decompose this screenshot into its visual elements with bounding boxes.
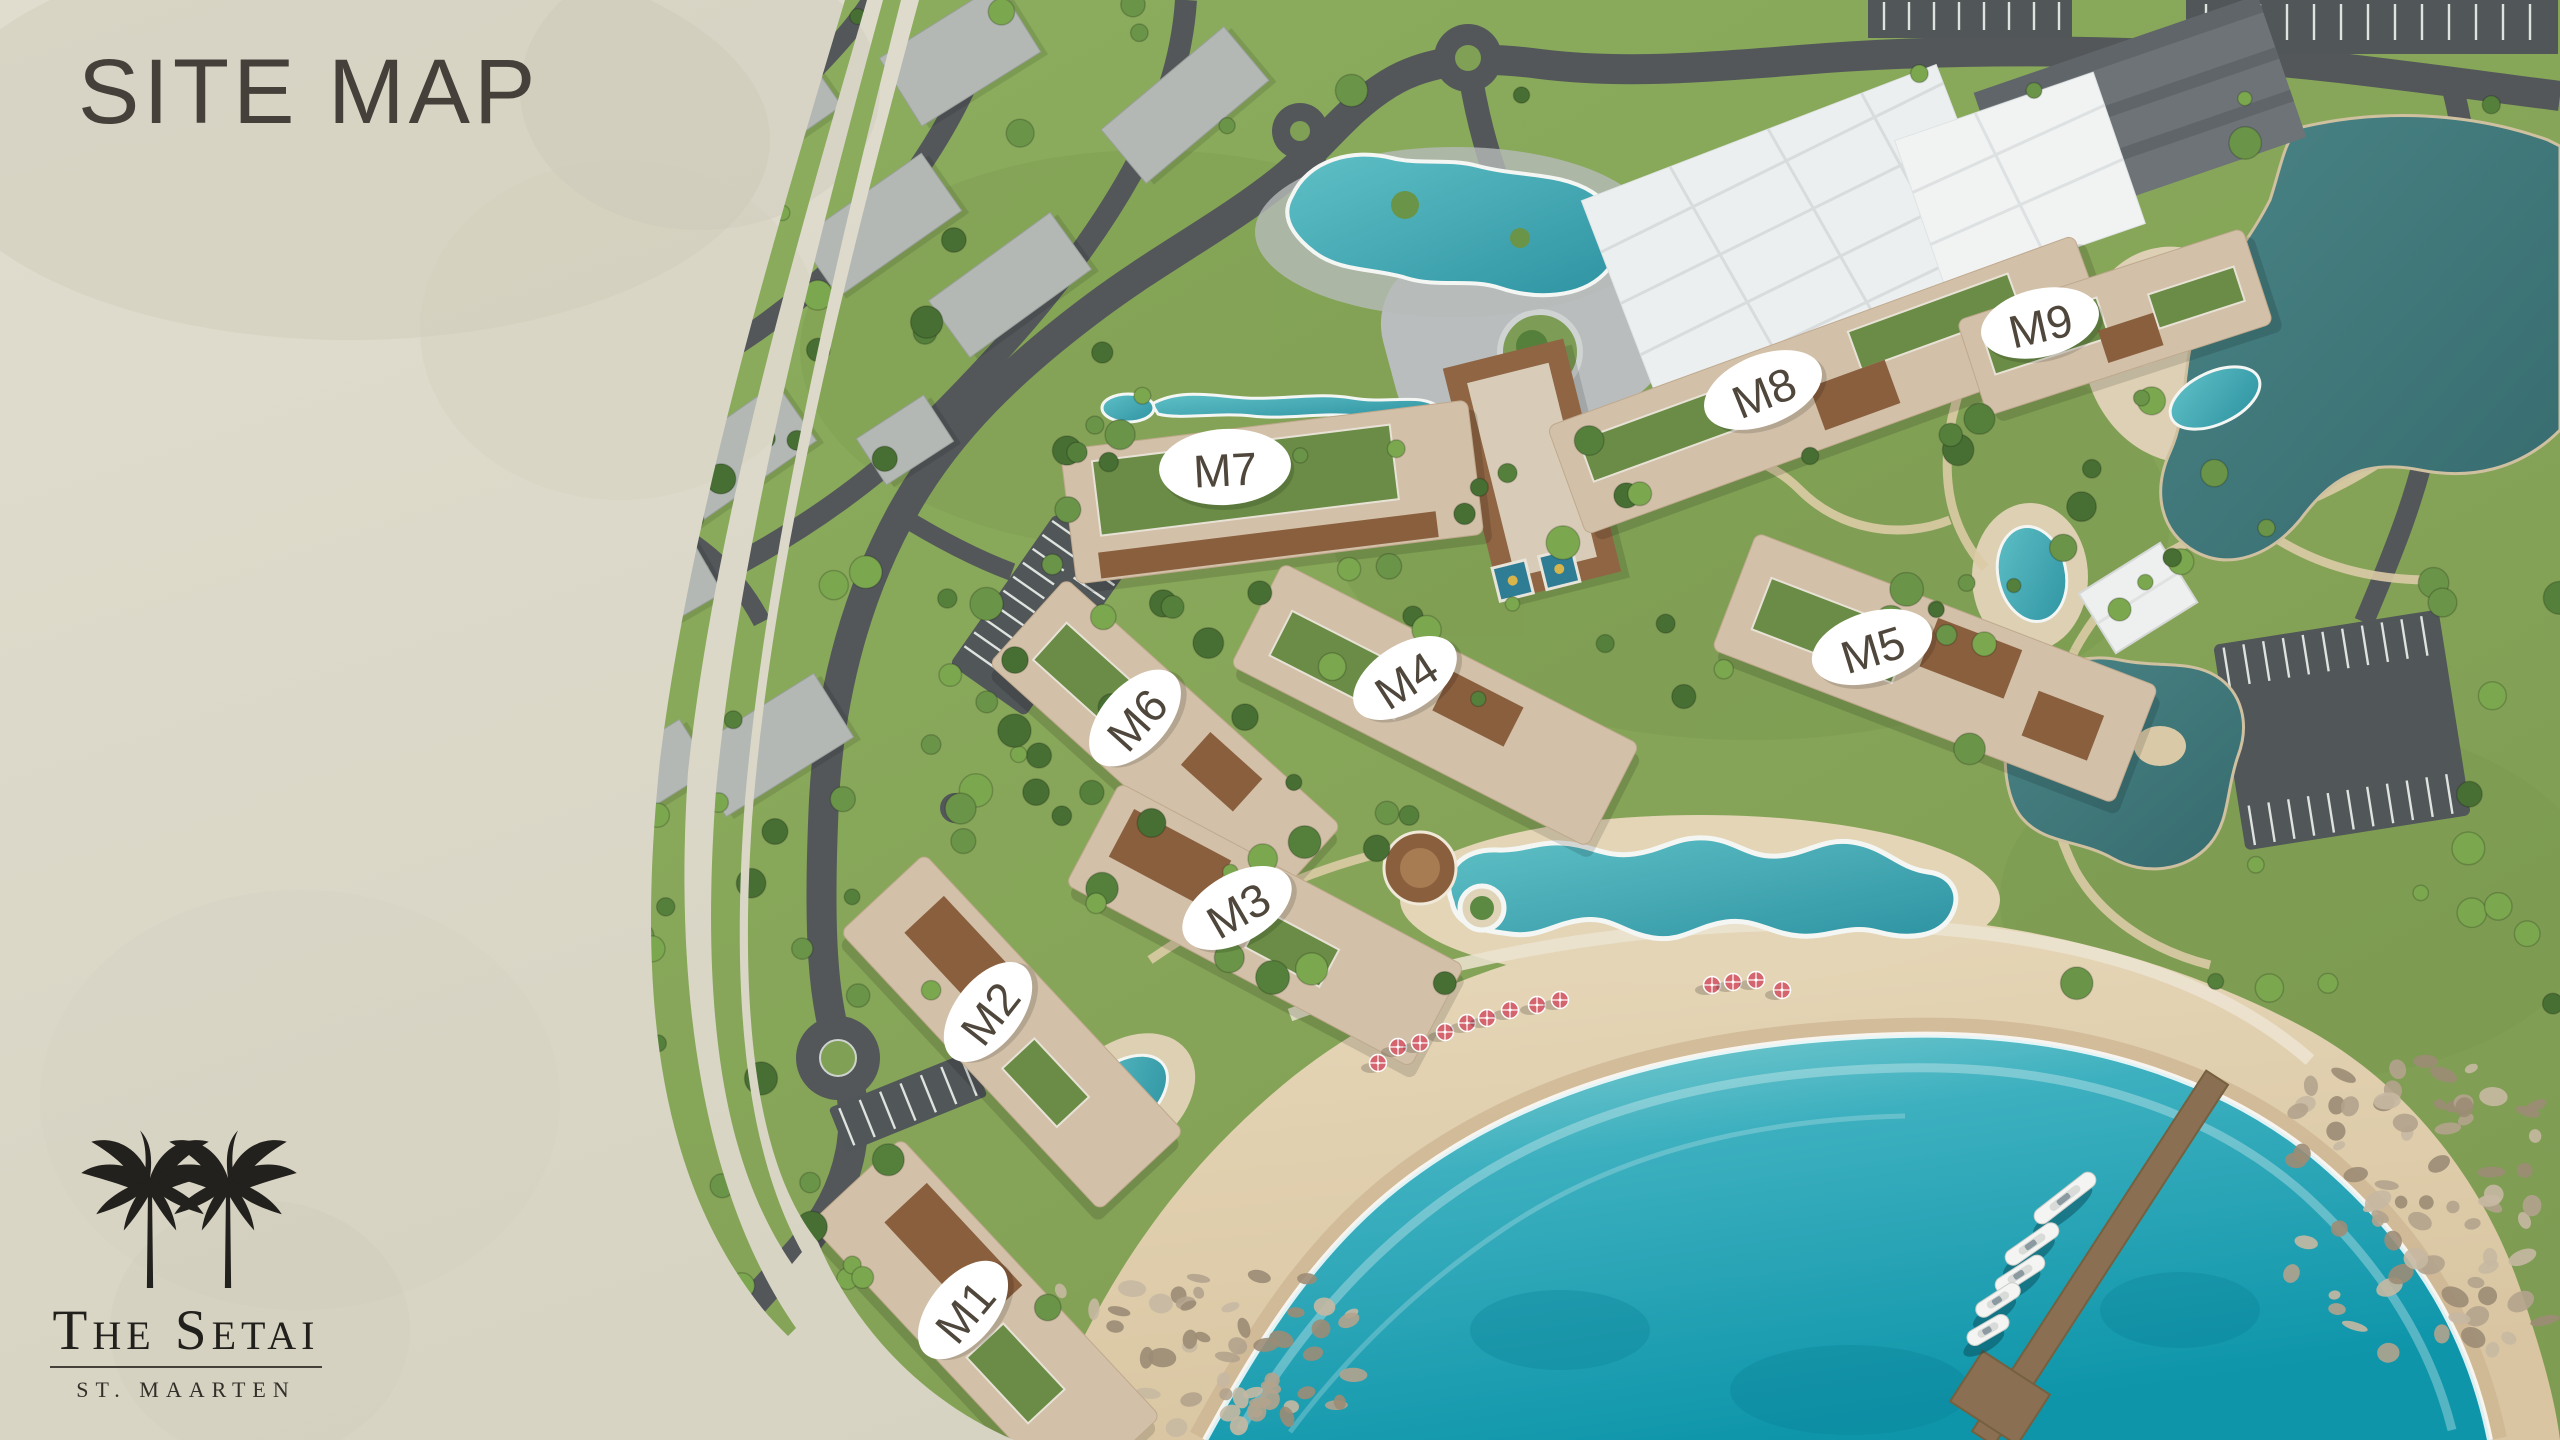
- brand-name: The Setai: [38, 1302, 334, 1359]
- logo-divider: [50, 1366, 322, 1368]
- brand-location: ST. MAARTEN: [38, 1377, 334, 1403]
- page-title: SITE MAP: [78, 40, 539, 145]
- palm-trees-icon: [38, 1122, 334, 1294]
- side-panel: [0, 0, 2560, 1440]
- brand-logo: The Setai ST. MAARTEN: [38, 1122, 334, 1403]
- site-plan-rendering: M1M2M3M4M5M6M7M8M9: [0, 0, 2560, 1440]
- site-map-page: M1M2M3M4M5M6M7M8M9 SITE MAP The Setai ST…: [0, 0, 2560, 1440]
